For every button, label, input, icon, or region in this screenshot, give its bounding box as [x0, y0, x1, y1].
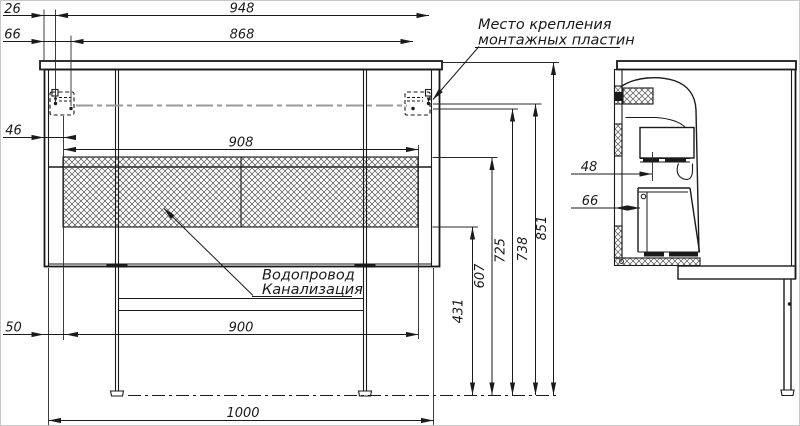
dim-851: 851	[535, 216, 550, 241]
dim-908: 908	[229, 136, 254, 151]
drawer-slide-right	[665, 159, 686, 162]
dim-738: 738	[516, 237, 531, 262]
dim-66-left: 66	[4, 28, 21, 43]
leg-plate-left	[107, 264, 128, 268]
plinth-strip-right	[669, 253, 698, 257]
dim-26: 26	[4, 2, 21, 17]
mounting-plate-section	[623, 88, 653, 104]
plumbing-label-line2: Канализация	[262, 282, 363, 298]
dim-46: 46	[5, 124, 22, 139]
leg-adjuster-icon	[788, 302, 792, 306]
drawer-slide-left	[643, 159, 659, 162]
dim-868: 868	[230, 28, 255, 43]
plinth-strip-left	[644, 253, 664, 257]
leg-plate-right	[355, 264, 376, 268]
dim-66-side: 66	[582, 194, 599, 209]
bottom-panel-hatch	[615, 258, 701, 266]
dim-1000: 1000	[226, 406, 259, 421]
mounting-label-line2: монтажных пластин	[478, 33, 635, 49]
dim-900: 900	[229, 321, 254, 336]
bolt-left-inner	[69, 107, 72, 110]
drawing-canvas: Место крепления монтажных пластин Водопр…	[0, 0, 800, 426]
mounting-bolt-section	[615, 92, 622, 101]
front-panel-hatch2	[615, 124, 623, 156]
dim-50: 50	[5, 321, 22, 336]
mounting-label-line1: Место крепления	[478, 17, 612, 33]
dim-607: 607	[473, 263, 488, 289]
dim-48-side: 48	[581, 160, 598, 175]
dim-431: 431	[452, 299, 467, 324]
technical-drawing-vanity-installation: Место крепления монтажных пластин Водопр…	[0, 0, 800, 426]
bolt-right-inner	[411, 107, 414, 110]
dim-948: 948	[230, 2, 255, 17]
dim-725: 725	[494, 238, 509, 263]
front-panel-hatch3	[615, 226, 623, 258]
